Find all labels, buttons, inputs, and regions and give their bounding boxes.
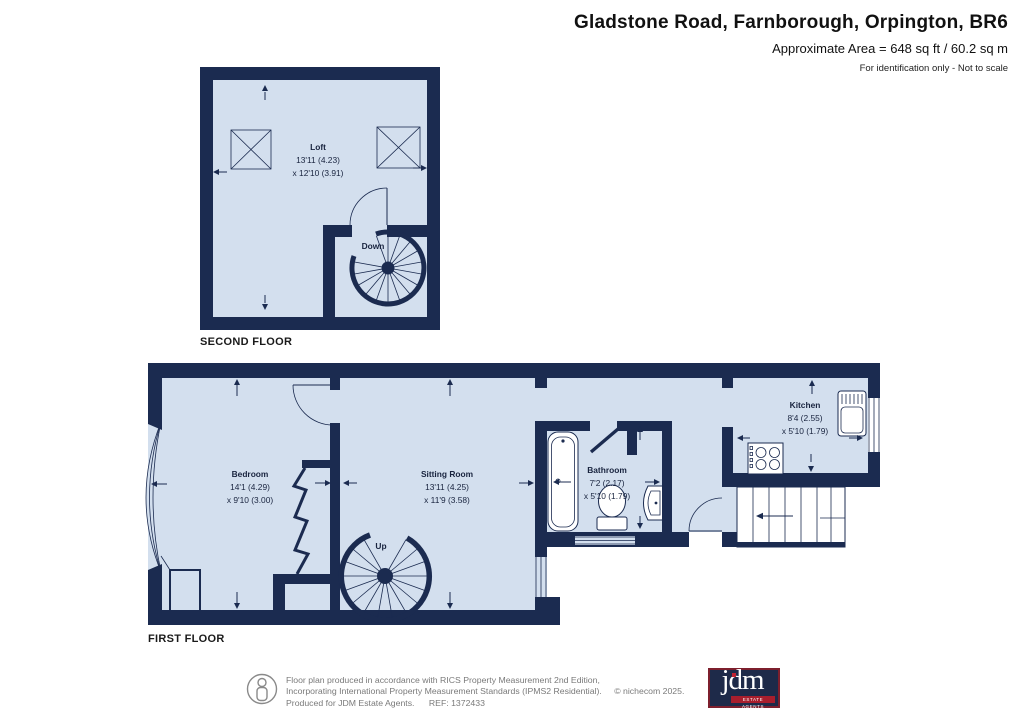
room-name-loft: Loft [310, 142, 326, 152]
second-floor-structure [200, 67, 440, 330]
stair-label-up: Up [375, 541, 386, 551]
room-dim1-bedroom: 14'1 (4.29) [230, 482, 270, 492]
first-floor-label: FIRST FLOOR [148, 633, 225, 645]
bedroom-label: Bedroom 14'1 (4.29) x 9'10 (3.00) [227, 469, 274, 505]
stair-label-down: Down [362, 241, 385, 251]
logo-j-dot [732, 673, 736, 677]
footer-ipms: Incorporating International Property Mea… [286, 686, 602, 696]
room-dim1-sitting-room: 13'11 (4.25) [425, 482, 469, 492]
room-dim2-bedroom: x 9'10 (3.00) [227, 495, 274, 505]
second-floor-plan: Loft 13'11 (4.23) x 12'10 (3.91) Down [197, 64, 443, 332]
bathroom-label: Bathroom 7'2 (2.17) x 5'10 (1.79) [584, 465, 631, 501]
hob [748, 443, 783, 474]
room-dim2-loft: x 12'10 (3.91) [293, 168, 344, 178]
room-dim1-bathroom: 7'2 (2.17) [589, 478, 624, 488]
jdm-estate-agents-logo: jdm ESTATE AGENTS [708, 668, 780, 708]
kitchen-sink [838, 391, 866, 436]
room-dim2-sitting-room: x 11'9 (3.58) [424, 495, 470, 505]
first-floor-plan: Bedroom 14'1 (4.29) x 9'10 (3.00) Sittin… [145, 360, 885, 650]
room-dim2-kitchen: x 5'10 (1.79) [782, 426, 829, 436]
bathroom-sink [644, 486, 663, 520]
room-name-sitting-room: Sitting Room [421, 469, 473, 479]
sitting-room-label: Sitting Room 13'11 (4.25) x 11'9 (3.58) [421, 469, 473, 505]
footer-line2: Incorporating International Property Mea… [286, 686, 684, 697]
footer-ref: REF: 1372433 [429, 698, 485, 708]
room-dim1-loft: 13'11 (4.23) [296, 155, 340, 165]
room-name-kitchen: Kitchen [790, 400, 821, 410]
footer-copyright: © nichecom 2025. [614, 686, 684, 696]
straight-staircase [737, 487, 845, 547]
room-dim2-bathroom: x 5'10 (1.79) [584, 491, 631, 501]
second-floor-label: SECOND FLOOR [200, 336, 292, 348]
logo-subtext: ESTATE AGENTS [731, 696, 775, 703]
footer-line3: Produced for JDM Estate Agents. REF: 137… [286, 698, 684, 709]
footer-line1: Floor plan produced in accordance with R… [286, 675, 684, 686]
scale-disclaimer: For identification only - Not to scale [574, 63, 1008, 74]
page-title: Gladstone Road, Farnborough, Orpington, … [574, 12, 1008, 34]
person-icon [246, 673, 280, 707]
room-name-bedroom: Bedroom [232, 469, 269, 479]
room-dim1-kitchen: 8'4 (2.55) [787, 413, 822, 423]
logo-text: jdm [710, 664, 775, 697]
header: Gladstone Road, Farnborough, Orpington, … [574, 12, 1008, 74]
footer-produced: Produced for JDM Estate Agents. [286, 698, 414, 708]
footer-disclaimer: Floor plan produced in accordance with R… [286, 675, 684, 709]
approximate-area: Approximate Area = 648 sq ft / 60.2 sq m [574, 41, 1008, 56]
room-name-bathroom: Bathroom [587, 465, 627, 475]
